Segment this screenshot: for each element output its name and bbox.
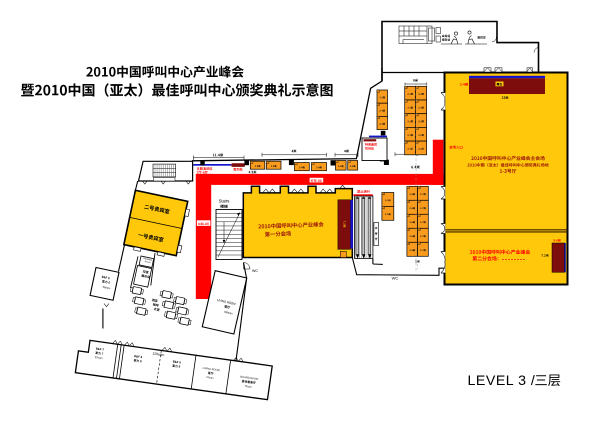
svg-text:LEVEL 3 /: LEVEL 3 / bbox=[468, 373, 536, 389]
svg-text:WC: WC bbox=[392, 276, 399, 281]
svg-text:Stairs: Stairs bbox=[219, 199, 230, 204]
svg-text:WC: WC bbox=[252, 269, 258, 273]
